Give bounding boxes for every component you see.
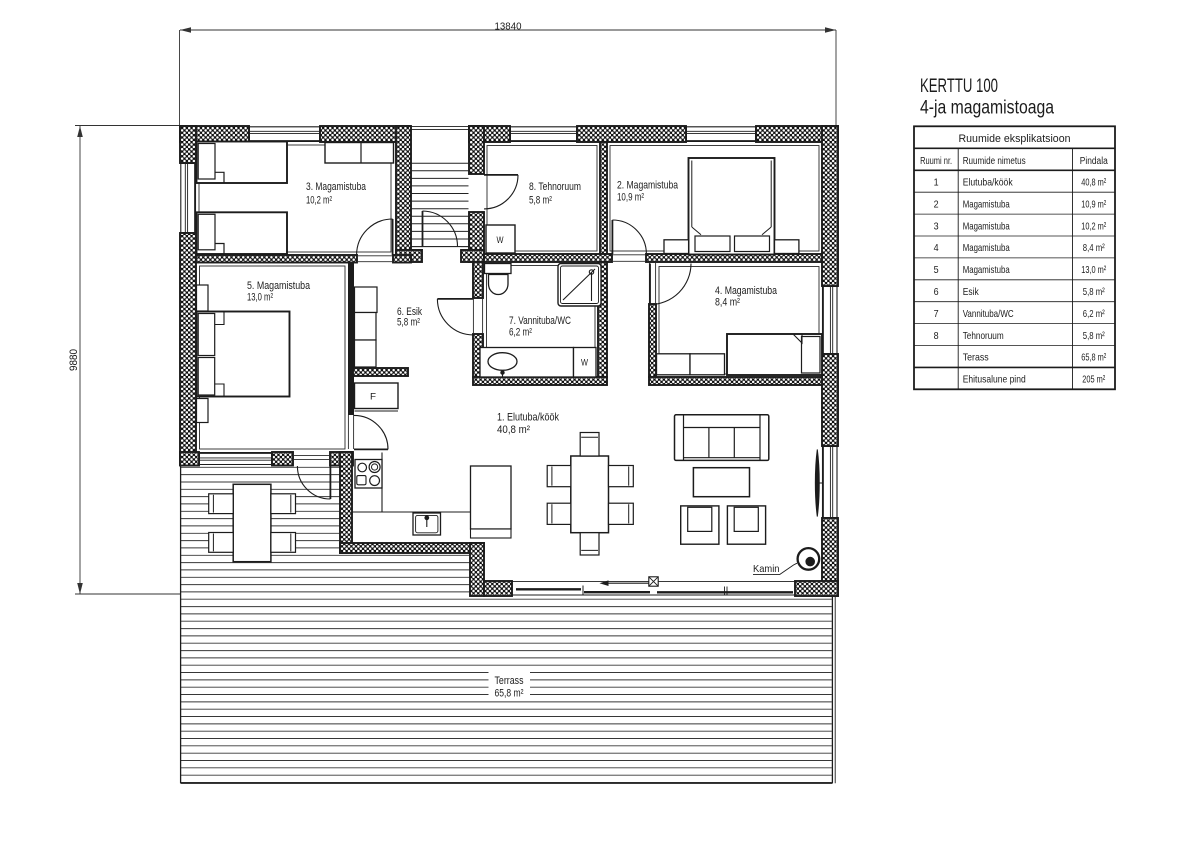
svg-text:F: F <box>370 392 376 403</box>
svg-text:5,8 m²: 5,8 m² <box>529 195 552 207</box>
svg-text:5. Magamistuba: 5. Magamistuba <box>247 280 311 292</box>
svg-text:5,8 m²: 5,8 m² <box>397 317 420 329</box>
svg-text:40,8 m²: 40,8 m² <box>497 424 530 436</box>
svg-text:W: W <box>497 235 504 246</box>
svg-text:Ruumide eksplikatsioon: Ruumide eksplikatsioon <box>959 133 1071 145</box>
svg-text:7. Vannituba/WC: 7. Vannituba/WC <box>509 315 571 327</box>
svg-text:8: 8 <box>934 330 939 342</box>
svg-text:5,8 m²: 5,8 m² <box>1083 286 1105 298</box>
svg-text:KERTTU 100: KERTTU 100 <box>920 76 998 97</box>
svg-text:Pindala: Pindala <box>1080 156 1108 167</box>
svg-text:13,0 m²: 13,0 m² <box>247 292 273 304</box>
svg-text:205 m²: 205 m² <box>1082 374 1105 386</box>
svg-text:1: 1 <box>934 177 939 189</box>
svg-text:8,4 m²: 8,4 m² <box>1083 242 1105 254</box>
svg-text:Terrass: Terrass <box>495 675 524 687</box>
svg-text:10,2 m²: 10,2 m² <box>1081 220 1106 232</box>
svg-text:4: 4 <box>934 242 939 254</box>
svg-text:8,4 m²: 8,4 m² <box>715 297 740 309</box>
svg-text:Terass: Terass <box>963 352 989 364</box>
svg-text:1. Elutuba/köök: 1. Elutuba/köök <box>497 412 559 424</box>
svg-text:4-ja magamistoaga: 4-ja magamistoaga <box>920 98 1054 119</box>
svg-text:Ruumide nimetus: Ruumide nimetus <box>963 156 1026 167</box>
svg-text:Magamistuba: Magamistuba <box>963 242 1010 254</box>
svg-text:7: 7 <box>934 308 939 320</box>
svg-text:8. Tehnoruum: 8. Tehnoruum <box>529 181 581 193</box>
svg-text:13,0 m²: 13,0 m² <box>1081 264 1106 276</box>
svg-text:2: 2 <box>934 198 939 210</box>
svg-text:3: 3 <box>934 220 939 232</box>
svg-text:Magamistuba: Magamistuba <box>963 220 1010 232</box>
svg-text:13840: 13840 <box>495 20 522 32</box>
svg-text:5,8 m²: 5,8 m² <box>1083 330 1105 342</box>
svg-text:6,2 m²: 6,2 m² <box>1083 308 1105 320</box>
svg-text:Tehnoruum: Tehnoruum <box>963 330 1004 342</box>
svg-text:Magamistuba: Magamistuba <box>963 198 1010 210</box>
svg-text:2. Magamistuba: 2. Magamistuba <box>617 180 679 192</box>
svg-text:Ehitusalune pind: Ehitusalune pind <box>963 374 1026 386</box>
svg-text:9880: 9880 <box>68 349 80 371</box>
svg-text:40,8 m²: 40,8 m² <box>1081 177 1106 189</box>
svg-text:Esik: Esik <box>963 286 980 298</box>
svg-text:5: 5 <box>934 264 939 276</box>
svg-text:65,8 m²: 65,8 m² <box>1081 352 1106 364</box>
svg-text:6: 6 <box>934 286 939 298</box>
svg-text:Vannituba/WC: Vannituba/WC <box>963 308 1014 320</box>
svg-text:4. Magamistuba: 4. Magamistuba <box>715 285 778 297</box>
svg-text:6,2 m²: 6,2 m² <box>509 327 532 339</box>
svg-text:3. Magamistuba: 3. Magamistuba <box>306 181 367 193</box>
svg-text:W: W <box>581 358 588 369</box>
svg-text:10,9 m²: 10,9 m² <box>1081 198 1106 210</box>
svg-text:Kamin: Kamin <box>753 563 780 575</box>
svg-text:10,2 m²: 10,2 m² <box>306 195 332 207</box>
svg-text:10,9 m²: 10,9 m² <box>617 192 644 204</box>
svg-text:Magamistuba: Magamistuba <box>963 264 1010 276</box>
svg-text:65,8 m²: 65,8 m² <box>495 688 524 700</box>
svg-text:Ruumi nr.: Ruumi nr. <box>920 156 952 167</box>
svg-text:Elutuba/köök: Elutuba/köök <box>963 177 1014 189</box>
